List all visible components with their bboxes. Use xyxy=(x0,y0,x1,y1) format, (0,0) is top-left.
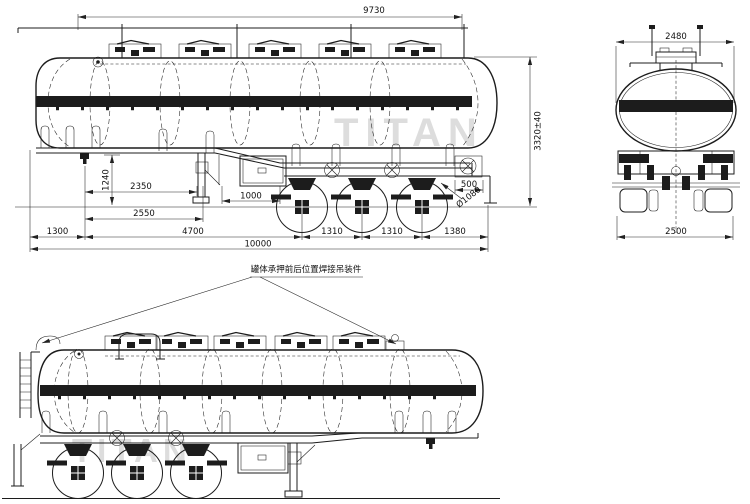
dim-label-frame-height: 1240 xyxy=(102,169,112,191)
dim-overall-length: 10000 xyxy=(30,240,488,250)
dim-overall-height: 3320±40 xyxy=(474,57,544,206)
dim-top-width: 2480 xyxy=(616,32,734,103)
dim-label-overall-height: 3320±40 xyxy=(534,111,544,151)
dim-label-toolbox-span: 1000 xyxy=(240,192,262,202)
drawing-canvas: TITAN xyxy=(0,0,750,504)
tank-body-bottom xyxy=(36,334,483,433)
wheels-right xyxy=(705,189,732,212)
dim-label-axle-spacing-2: 1310 xyxy=(381,227,403,237)
drawing-page: TITAN xyxy=(0,0,750,504)
manhole-covers xyxy=(109,41,441,59)
dim-label-top-width: 2480 xyxy=(665,32,687,42)
weld-callout: 罐体承押前后位置焊接吊装件 xyxy=(42,264,396,344)
kingpin xyxy=(80,153,89,159)
wheels-left xyxy=(620,189,647,212)
toolbox-bottom xyxy=(238,443,288,473)
pipe-arch xyxy=(115,334,165,359)
dim-label-overall-length: 10000 xyxy=(244,240,271,250)
side-view: TITAN xyxy=(15,6,544,252)
toolbox xyxy=(240,156,286,186)
dim-label-axle-spacing-1: 1310 xyxy=(321,227,343,237)
rear-grab-rail xyxy=(36,336,60,350)
manhole-covers-bottom xyxy=(105,333,404,351)
dim-label-kingpin-to-landing-foot: 2550 xyxy=(133,209,155,219)
dim-top-length: 9730 xyxy=(78,6,462,30)
kingpin-bottom xyxy=(426,438,435,444)
tank-stripe-bottom xyxy=(40,385,476,396)
running-gear xyxy=(15,163,537,233)
dim-label-kingpin-to-first-axle: 4700 xyxy=(182,227,204,237)
mudguard-left xyxy=(619,154,649,163)
dim-label-overall-width: 2500 xyxy=(665,227,687,237)
dim-label-rear-overhang: 1380 xyxy=(444,227,466,237)
landing-gear-bottom xyxy=(285,443,315,497)
dim-frame-height: 1240 xyxy=(102,155,121,205)
dim-label-kingpin-to-landing-leg: 2350 xyxy=(130,182,152,192)
rear-view: 2480 xyxy=(612,25,740,240)
dim-label-front-overhang: 1300 xyxy=(47,227,69,237)
dim-label-top-length: 9730 xyxy=(363,6,385,16)
bottom-view: TITAN 罐体承押前后位置焊接吊装件 xyxy=(2,264,500,499)
top-rail xyxy=(18,24,468,58)
dim-overall-width: 2500 xyxy=(617,216,733,240)
tank-stripe xyxy=(36,96,472,107)
tank-rear xyxy=(616,25,736,233)
rear-ladder xyxy=(20,352,40,418)
rear-bumper-bottom xyxy=(11,434,40,486)
mudguard-right xyxy=(703,154,733,163)
callout-text: 罐体承押前后位置焊接吊装件 xyxy=(251,264,362,275)
weld-fitting xyxy=(386,341,404,350)
discharge-pipes-bottom xyxy=(42,411,456,433)
